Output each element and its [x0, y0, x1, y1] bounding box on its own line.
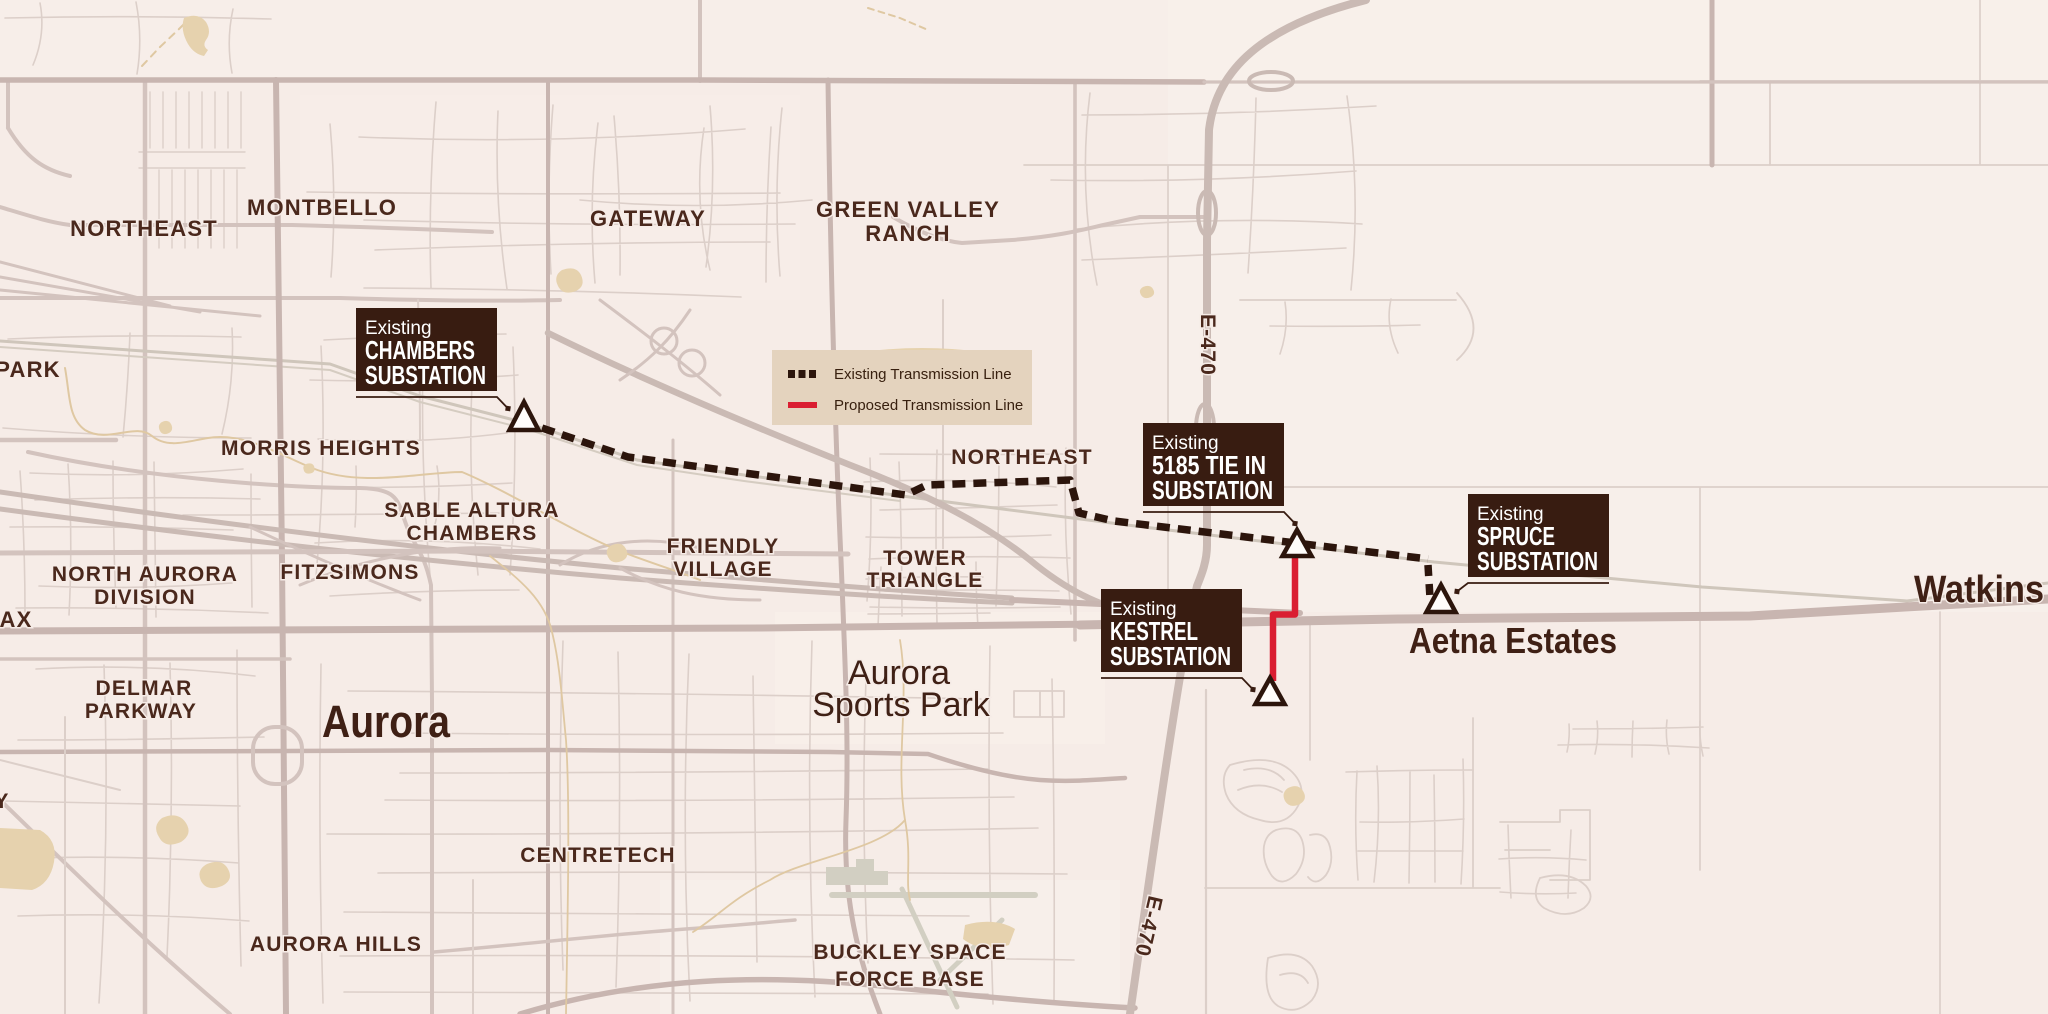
svg-text:SUBSTATION: SUBSTATION [1152, 475, 1273, 505]
svg-text:DELMAR: DELMAR [95, 677, 192, 700]
svg-text:GREEN VALLEY: GREEN VALLEY [816, 197, 1000, 222]
svg-text:TOWER: TOWER [883, 547, 967, 570]
svg-text:DIVISION: DIVISION [94, 586, 196, 609]
svg-text:CENTRETECH: CENTRETECH [520, 844, 676, 867]
svg-text:PARKWAY: PARKWAY [85, 700, 197, 723]
svg-text:CHAMBERS: CHAMBERS [407, 522, 538, 545]
svg-text:SUBSTATION: SUBSTATION [1110, 641, 1231, 671]
svg-text:SUBSTATION: SUBSTATION [1477, 546, 1598, 576]
svg-text:PARK: PARK [0, 357, 61, 382]
svg-text:GATEWAY: GATEWAY [590, 206, 706, 231]
svg-text:MONTBELLO: MONTBELLO [247, 195, 397, 220]
svg-text:NORTHEAST: NORTHEAST [951, 446, 1092, 469]
svg-text:SUBSTATION: SUBSTATION [365, 360, 486, 390]
svg-text:FORCE BASE: FORCE BASE [835, 968, 985, 991]
svg-text:Watkins: Watkins [1914, 569, 2044, 611]
svg-text:SABLE ALTURA: SABLE ALTURA [384, 499, 559, 522]
svg-text:NORTH AURORA: NORTH AURORA [52, 563, 238, 586]
svg-text:RANCH: RANCH [865, 221, 950, 246]
svg-text:FRIENDLY: FRIENDLY [667, 535, 780, 558]
svg-text:VILLAGE: VILLAGE [673, 558, 772, 581]
svg-text:BUCKLEY SPACE: BUCKLEY SPACE [813, 941, 1006, 964]
svg-text:TRIANGLE: TRIANGLE [867, 569, 984, 592]
svg-text:AX: AX [0, 607, 32, 632]
svg-text:Proposed Transmission Line: Proposed Transmission Line [834, 397, 1023, 414]
svg-text:MORRIS HEIGHTS: MORRIS HEIGHTS [221, 437, 421, 460]
svg-text:E-470: E-470 [1196, 314, 1219, 376]
svg-text:Aurora: Aurora [322, 696, 451, 747]
svg-text:Sports Park: Sports Park [812, 686, 991, 724]
svg-text:Aetna Estates: Aetna Estates [1409, 620, 1617, 661]
svg-text:NORTHEAST: NORTHEAST [70, 216, 218, 241]
svg-text:FITZSIMONS: FITZSIMONS [280, 561, 419, 584]
svg-text:AURORA HILLS: AURORA HILLS [250, 933, 422, 956]
svg-text:Existing Transmission Line: Existing Transmission Line [834, 366, 1012, 383]
svg-text:Y: Y [0, 790, 10, 813]
